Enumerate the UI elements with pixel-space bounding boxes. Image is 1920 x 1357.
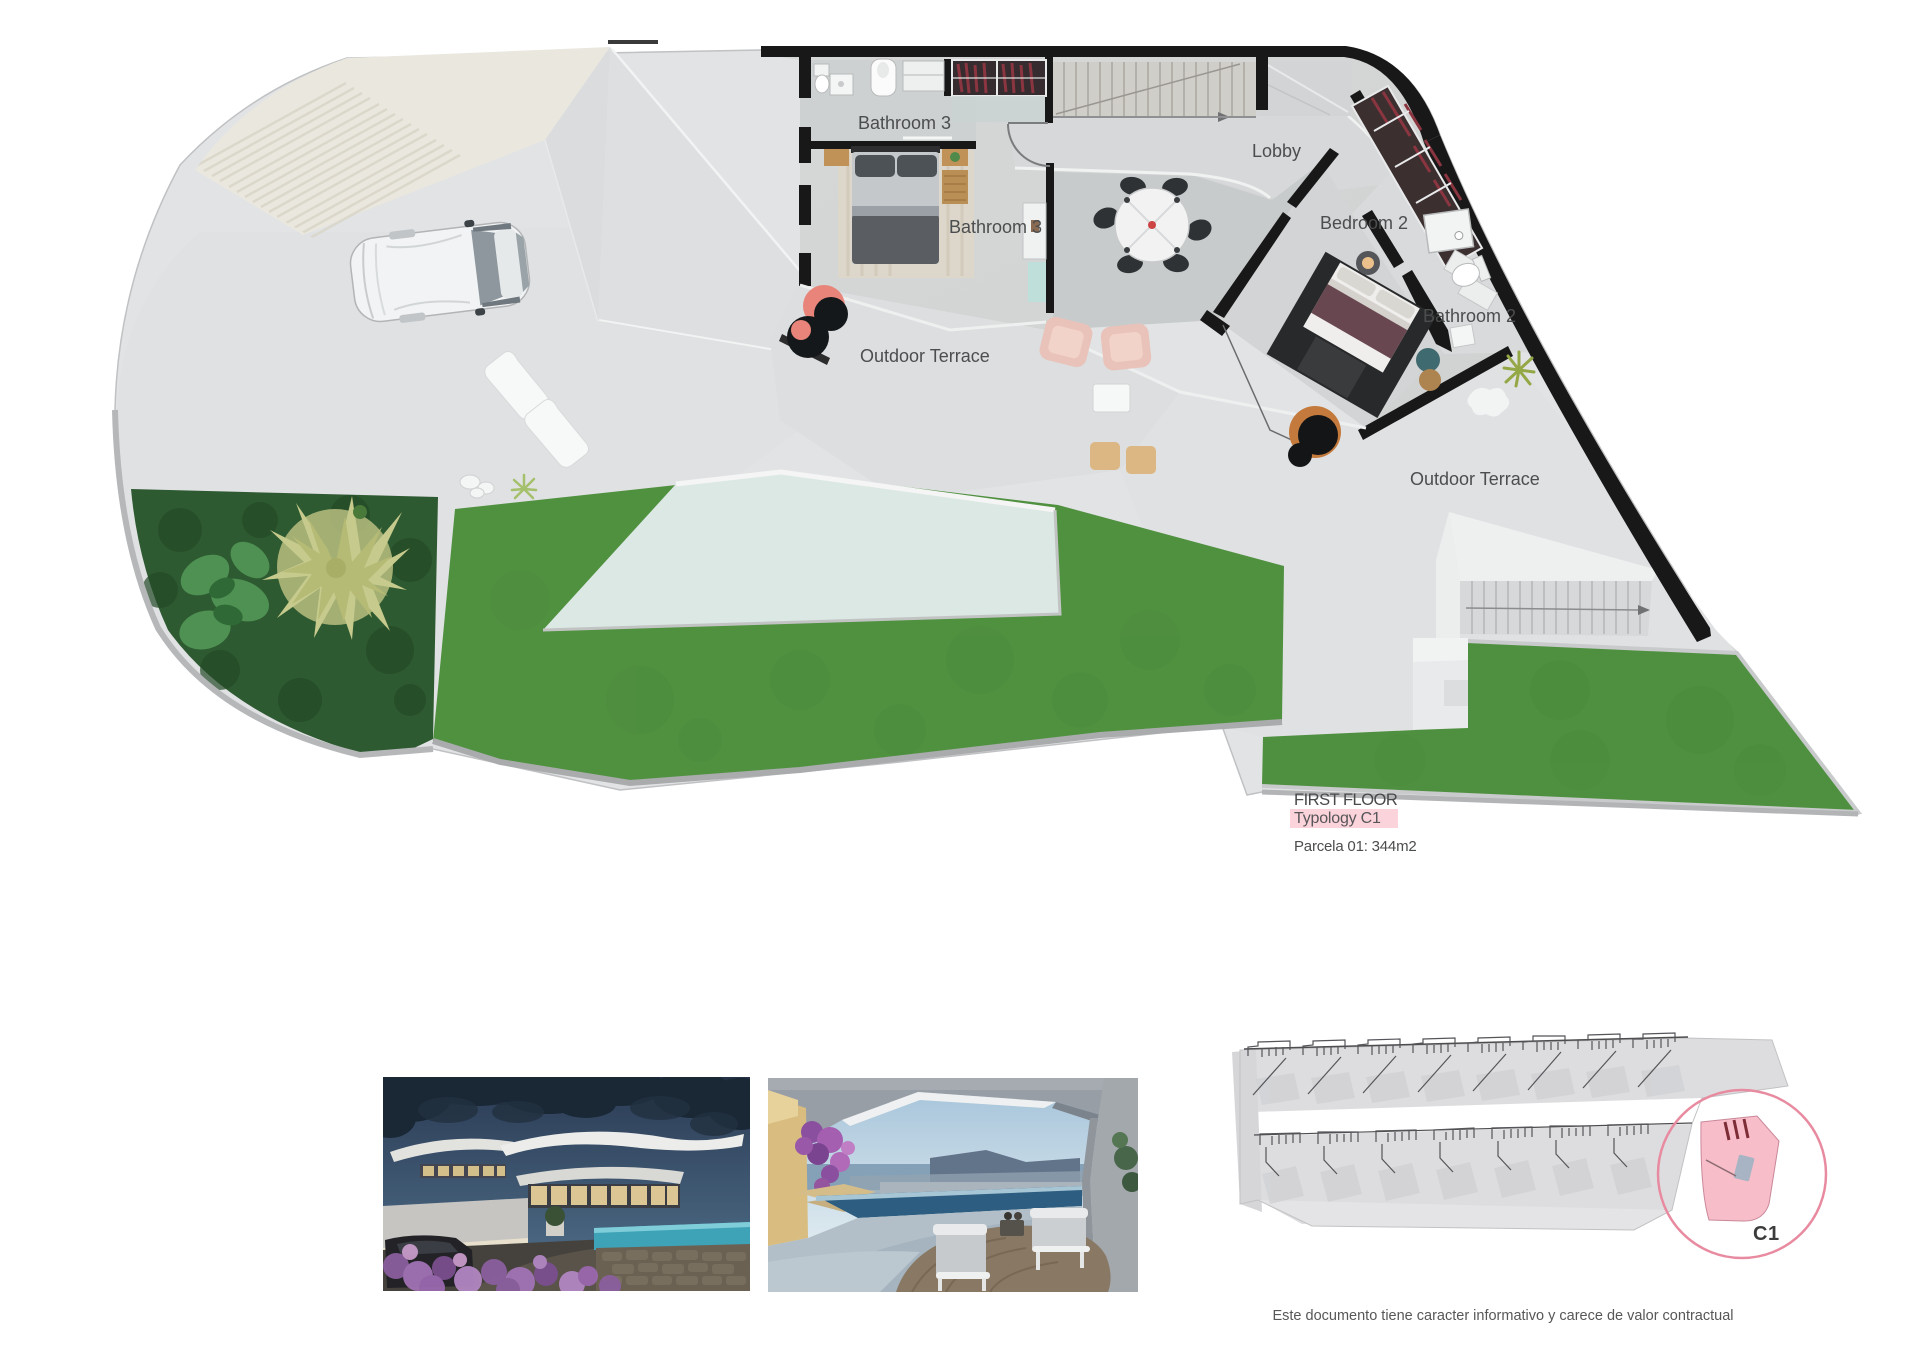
svg-text:Outdoor Terrace: Outdoor Terrace (1410, 469, 1540, 489)
svg-text:C1: C1 (1753, 1223, 1780, 1245)
svg-text:Bedroom 2: Bedroom 2 (1320, 213, 1408, 233)
svg-text:Lobby: Lobby (1252, 141, 1301, 161)
svg-text:Este documento tiene caracter: Este documento tiene caracter informativ… (1272, 1308, 1733, 1324)
svg-text:Bathroom 3: Bathroom 3 (858, 113, 951, 133)
svg-text:Bathroom 3: Bathroom 3 (949, 217, 1042, 237)
svg-text:Typology C1: Typology C1 (1294, 810, 1381, 827)
svg-text:Parcela 01: 344m2: Parcela 01: 344m2 (1294, 838, 1417, 855)
svg-text:Bathroom 2: Bathroom 2 (1423, 306, 1516, 326)
svg-text:Outdoor Terrace: Outdoor Terrace (860, 346, 990, 366)
svg-text:FIRST FLOOR: FIRST FLOOR (1294, 791, 1398, 809)
